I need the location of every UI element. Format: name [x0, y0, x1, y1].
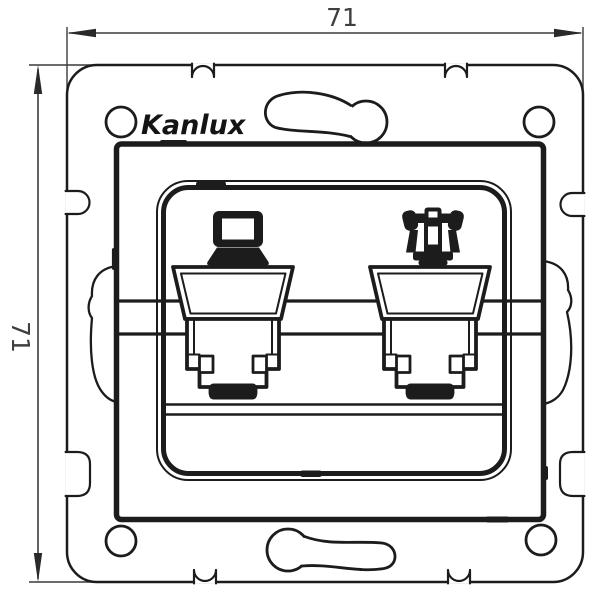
plate-tab-right — [542, 466, 548, 480]
phone-base — [413, 252, 453, 261]
screw-hole-top-right — [524, 107, 554, 137]
arrowhead-bottom — [34, 553, 42, 582]
screw-hole-top-left — [106, 107, 136, 137]
phone-base-lip — [419, 260, 448, 266]
right-edge-notch — [561, 193, 585, 216]
computer-icon — [207, 211, 269, 266]
module-tab-bottom — [300, 471, 322, 478]
height-dimension-label: 71 — [6, 321, 35, 353]
claw-right — [543, 261, 571, 404]
arrowhead-right — [554, 29, 583, 37]
handset-grip-window — [429, 212, 438, 218]
latch-ear-left — [200, 356, 214, 373]
plate-tab-top — [160, 140, 187, 146]
technical-drawing-canvas: 71 71 — [0, 0, 600, 600]
jack-foot — [406, 384, 454, 400]
right-edge-slot — [560, 452, 584, 496]
jack-foot — [209, 384, 257, 400]
socket-funnel — [173, 267, 293, 319]
left-edge-notch — [66, 191, 90, 214]
latch-ear-left — [397, 356, 411, 373]
laptop-base — [207, 248, 269, 266]
module-tab-top — [196, 182, 226, 189]
latch-ear-right — [450, 356, 464, 373]
socket-funnel — [370, 267, 490, 319]
width-dimension-label: 71 — [326, 3, 358, 32]
arrowhead-top — [34, 65, 42, 94]
plate-tab-left — [112, 248, 118, 270]
wall-socket-technical-drawing: 71 71 — [0, 0, 600, 600]
phone-window — [428, 227, 438, 245]
arrowhead-left — [67, 29, 96, 37]
latch-ear-right — [253, 356, 267, 373]
brand-logo: Kanlux — [141, 110, 247, 141]
screw-hole-bottom-right — [526, 525, 556, 555]
screw-hole-bottom-left — [106, 526, 136, 556]
laptop-screen-window — [222, 219, 254, 240]
left-edge-slot — [66, 452, 90, 496]
plate-tab-bottom — [486, 517, 509, 523]
